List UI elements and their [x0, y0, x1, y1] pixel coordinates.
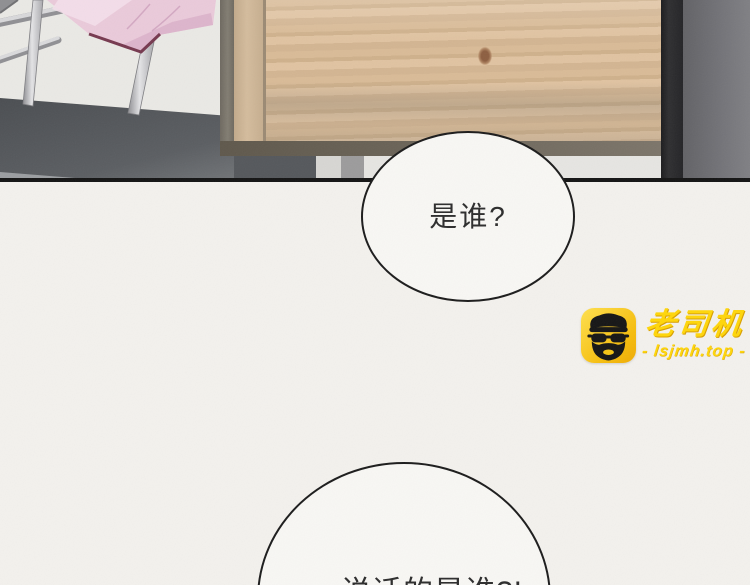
speech-bubble-2-text: 说话的是谁?!: [322, 567, 542, 585]
speech-bubble-1-text: 是谁?: [429, 195, 507, 235]
cabinet-wood-panel: [266, 0, 661, 141]
wall-dark-strip: [661, 0, 683, 181]
watermark-texts: 老司机 - lsjmh.top -: [641, 310, 750, 361]
watermark-site-url: - lsjmh.top -: [641, 343, 747, 361]
scene-panel: [0, 0, 750, 182]
under-cabinet-block-gray: [341, 156, 364, 180]
cabinet-stile: [234, 0, 263, 145]
cabinet-frame: [220, 0, 234, 156]
comic-page: 是谁?: [0, 0, 750, 585]
driver-face-icon: [581, 308, 636, 363]
under-cabinet-block-light: [316, 156, 341, 180]
under-cabinet-shadow: [234, 156, 316, 180]
watermark-icon: [581, 308, 636, 363]
speech-bubble-1: 是谁?: [361, 131, 575, 302]
chair-cushion: [47, 0, 216, 53]
watermark-site-name: 老司机: [643, 310, 750, 340]
wall-side-panel: [683, 0, 750, 181]
chair: [0, 0, 240, 135]
watermark: 老司机 - lsjmh.top -: [581, 304, 750, 366]
